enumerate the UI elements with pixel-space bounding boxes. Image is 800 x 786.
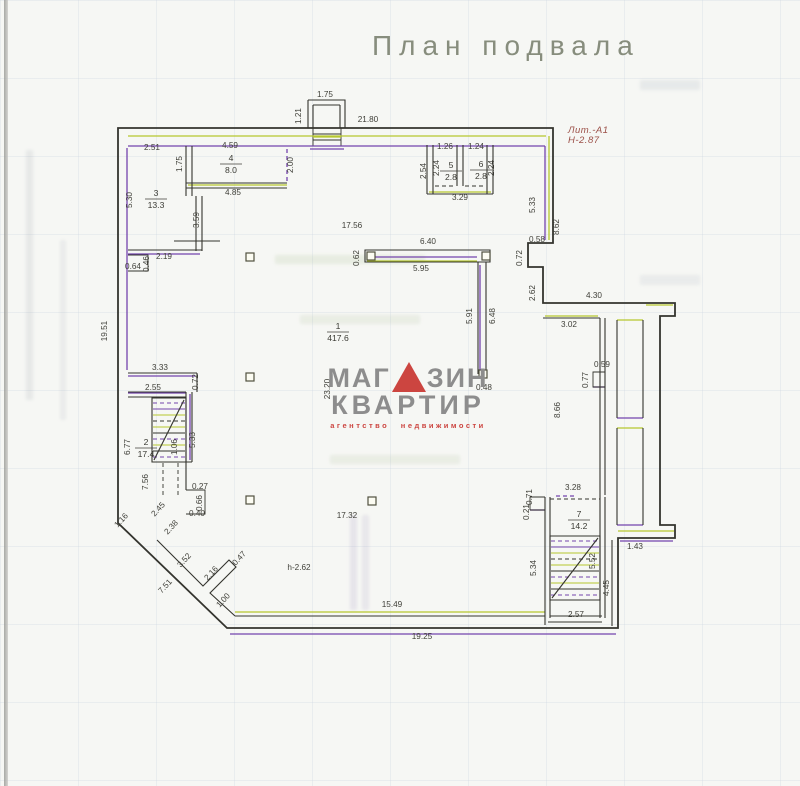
dimension-label: 1.43 bbox=[627, 542, 643, 551]
dimension-label: 2.16 bbox=[202, 564, 220, 582]
dimension-label: 0.72 bbox=[515, 250, 524, 266]
room-area: 14.2 bbox=[571, 521, 588, 531]
dimension-label: 2.62 bbox=[528, 285, 537, 301]
dimension-label: 1.26 bbox=[437, 142, 453, 151]
room-area: 13.3 bbox=[148, 200, 165, 210]
dimension-label: 6.77 bbox=[123, 439, 132, 455]
dimension-label: 2.57 bbox=[568, 610, 584, 619]
dimension-label: 0.40 bbox=[189, 509, 205, 518]
column-marker bbox=[246, 253, 254, 261]
dimension-label: 6.40 bbox=[420, 237, 436, 246]
dimension-label: 2.19 bbox=[156, 252, 172, 261]
dimension-label: 15.49 bbox=[382, 600, 403, 609]
room-number: 7 bbox=[577, 509, 582, 519]
dimension-label: 1.21 bbox=[294, 108, 303, 124]
dimension-label: 19.25 bbox=[412, 632, 433, 641]
room-area: 2.8 bbox=[475, 171, 487, 181]
dimension-label: 0.62 bbox=[352, 250, 361, 266]
dimension-label: 17.56 bbox=[342, 221, 363, 230]
dimension-label: 0.47 bbox=[230, 549, 248, 567]
stair-left-hatch bbox=[153, 400, 185, 460]
room-area: 8.0 bbox=[225, 165, 237, 175]
dimension-label: 4.30 bbox=[586, 291, 602, 300]
dimension-label: 8.62 bbox=[552, 219, 561, 235]
dimension-label: 4.45 bbox=[602, 580, 611, 596]
dimension-label: 0.72 bbox=[191, 374, 200, 390]
dimension-label: 19.51 bbox=[100, 320, 109, 341]
dimension-label: 5.33 bbox=[188, 432, 197, 448]
dimension-label: 21.80 bbox=[358, 115, 379, 124]
room-number: 5 bbox=[449, 160, 454, 170]
dimension-label: 5.33 bbox=[528, 197, 537, 213]
dimension-label: 3.52 bbox=[175, 551, 193, 569]
dimension-label: 5.34 bbox=[529, 560, 538, 576]
dimension-label: 3.33 bbox=[152, 363, 168, 372]
room-number: 6 bbox=[479, 159, 484, 169]
column-marker bbox=[368, 497, 376, 505]
dimension-label: 2.51 bbox=[144, 143, 160, 152]
dimension-label: 3.29 bbox=[452, 193, 468, 202]
dimension-label: 0.71 bbox=[525, 489, 534, 505]
watermark-word1-left: МАГ bbox=[327, 364, 390, 392]
watermark-triangle-icon bbox=[392, 362, 426, 392]
agency-watermark: МАГ ЗИН КВАРТИР агентство недвижимости bbox=[328, 362, 488, 430]
dimension-label: 1.00 bbox=[214, 591, 232, 609]
dimension-label: 2.45 bbox=[149, 500, 167, 518]
room-number: 2 bbox=[144, 437, 149, 447]
watermark-line1: МАГ ЗИН bbox=[328, 362, 488, 392]
column-marker bbox=[246, 496, 254, 504]
dimension-label: 2.38 bbox=[162, 518, 180, 536]
column-marker bbox=[482, 252, 490, 260]
dimension-label: 6.48 bbox=[488, 308, 497, 324]
room-area: 417.6 bbox=[327, 333, 349, 343]
watermark-tagline: агентство недвижимости bbox=[328, 421, 488, 430]
dimension-label: 7.51 bbox=[156, 577, 174, 595]
dimension-label: 2.00 bbox=[286, 157, 295, 173]
dimension-label: 0.46 bbox=[142, 256, 151, 272]
dimension-label: 2.24 bbox=[487, 160, 496, 176]
dimension-label: 1.06 bbox=[170, 439, 179, 455]
dimension-label: 1.75 bbox=[175, 156, 184, 172]
dimension-label: 0.21 bbox=[522, 504, 531, 520]
dimension-label: h-2.62 bbox=[287, 563, 311, 572]
room-number: 1 bbox=[336, 321, 341, 331]
watermark-word1-right: ЗИН bbox=[427, 364, 489, 392]
dimension-label: 5.95 bbox=[413, 264, 429, 273]
dimension-label: 8.66 bbox=[553, 402, 562, 418]
scanned-plan-page: План подвала Лит.-А1 Н-2.87 bbox=[0, 0, 800, 786]
dimension-label: 0.58 bbox=[529, 235, 545, 244]
dimension-label: 5.91 bbox=[465, 308, 474, 324]
column-marker bbox=[246, 373, 254, 381]
room-area: 2.8 bbox=[445, 172, 457, 182]
dimension-label: 3.28 bbox=[565, 483, 581, 492]
dimension-label: 4.59 bbox=[222, 141, 238, 150]
room-number: 4 bbox=[229, 153, 234, 163]
watermark-line2: КВАРТИР bbox=[328, 392, 488, 419]
dimension-label: 7.56 bbox=[141, 474, 150, 490]
dimension-label: 2.55 bbox=[145, 383, 161, 392]
dimension-label: 17.32 bbox=[337, 511, 358, 520]
dimension-label: 0.27 bbox=[192, 482, 208, 491]
dimension-label: 5.30 bbox=[125, 192, 134, 208]
dimension-label: 4.85 bbox=[225, 188, 241, 197]
dimension-label: 3.59 bbox=[192, 212, 201, 228]
dimension-label: 2.54 bbox=[419, 163, 428, 179]
dimension-label: 5.52 bbox=[588, 553, 597, 569]
dimension-label: 1.24 bbox=[468, 142, 484, 151]
column-marker bbox=[367, 252, 375, 260]
room-area: 17.4 bbox=[138, 449, 155, 459]
room-number: 3 bbox=[154, 188, 159, 198]
dimension-label: 0.64 bbox=[125, 262, 141, 271]
dimension-label: 3.02 bbox=[561, 320, 577, 329]
dimension-label: 0.59 bbox=[594, 360, 610, 369]
dimension-label: 1.16 bbox=[112, 511, 130, 529]
room-labels: 1417.6217.4313.348.052.862.8714.2 bbox=[135, 153, 590, 531]
dimension-label: 1.75 bbox=[317, 90, 333, 99]
dimension-label: 0.77 bbox=[581, 372, 590, 388]
dimension-label: 2.24 bbox=[432, 160, 441, 176]
